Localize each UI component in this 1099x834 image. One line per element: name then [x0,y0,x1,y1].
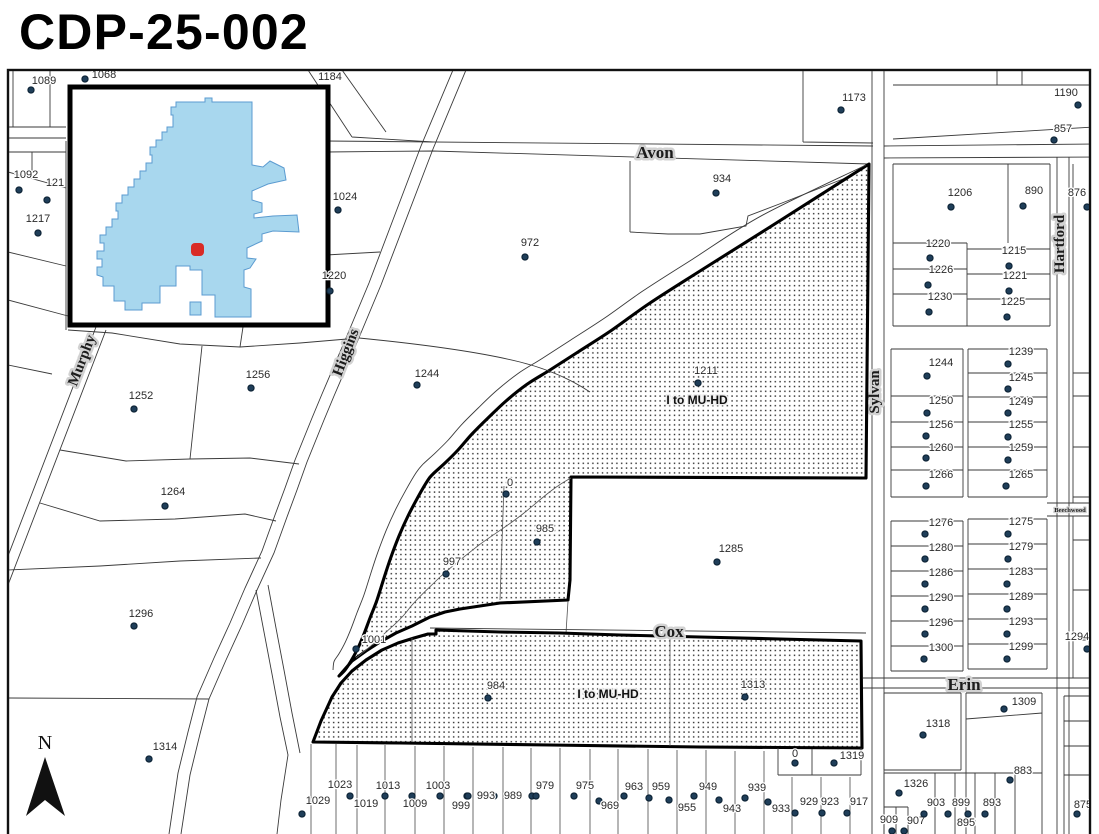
svg-text:1226: 1226 [929,264,953,276]
svg-text:876: 876 [1068,187,1086,199]
svg-text:893: 893 [983,797,1001,809]
svg-text:1206: 1206 [948,187,972,199]
svg-text:1001: 1001 [362,634,386,646]
svg-text:1173: 1173 [842,92,866,104]
svg-text:Beechwood: Beechwood [1054,507,1086,514]
svg-text:1300: 1300 [929,642,953,654]
svg-text:0: 0 [507,477,513,489]
svg-text:CDP-25-002: CDP-25-002 [19,4,309,60]
svg-text:1276: 1276 [929,517,953,529]
svg-text:I to MU-HD: I to MU-HD [666,393,728,407]
svg-text:1319: 1319 [840,750,864,762]
svg-text:1289: 1289 [1009,591,1033,603]
svg-text:903: 903 [927,797,945,809]
svg-text:1255: 1255 [1009,419,1033,431]
svg-text:959: 959 [652,781,670,793]
svg-text:972: 972 [521,237,539,249]
svg-text:1309: 1309 [1012,696,1036,708]
svg-text:1299: 1299 [1009,641,1033,653]
svg-text:979: 979 [536,780,554,792]
svg-text:929: 929 [800,796,818,808]
svg-text:1221: 1221 [1003,270,1027,282]
svg-text:955: 955 [678,802,696,814]
svg-text:1318: 1318 [926,718,950,730]
svg-text:1285: 1285 [719,543,743,555]
svg-text:1215: 1215 [1002,245,1026,257]
svg-text:1275: 1275 [1009,516,1033,528]
svg-text:933: 933 [772,803,790,815]
svg-text:943: 943 [723,803,741,815]
svg-text:1280: 1280 [929,542,953,554]
svg-text:1239: 1239 [1009,346,1033,358]
svg-text:1293: 1293 [1009,616,1033,628]
svg-text:1294: 1294 [1065,631,1089,643]
svg-text:949: 949 [699,781,717,793]
svg-text:1211: 1211 [694,365,718,377]
svg-text:1250: 1250 [929,395,953,407]
svg-text:984: 984 [487,680,505,692]
svg-text:Cox: Cox [654,622,684,641]
svg-text:917: 917 [850,796,868,808]
svg-text:899: 899 [952,797,970,809]
svg-text:1283: 1283 [1009,566,1033,578]
svg-text:989: 989 [504,790,522,802]
svg-text:993: 993 [477,790,495,802]
svg-text:939: 939 [748,782,766,794]
svg-text:1230: 1230 [928,291,952,303]
svg-text:909: 909 [880,814,898,826]
svg-text:1092: 1092 [14,169,38,181]
svg-text:985: 985 [536,523,554,535]
svg-text:1244: 1244 [929,357,953,369]
svg-text:Avon: Avon [636,143,674,162]
svg-text:1252: 1252 [129,390,153,402]
svg-text:N: N [38,732,52,754]
svg-text:1024: 1024 [333,191,357,203]
svg-text:1029: 1029 [306,795,330,807]
svg-text:1265: 1265 [1009,469,1033,481]
svg-text:1184: 1184 [318,71,342,83]
svg-text:Hartford: Hartford [1052,214,1068,273]
svg-text:1220: 1220 [926,238,950,250]
svg-text:1003: 1003 [426,780,450,792]
svg-text:1023: 1023 [328,779,352,791]
svg-text:1245: 1245 [1009,372,1033,384]
svg-text:857: 857 [1054,123,1072,135]
svg-text:1266: 1266 [929,469,953,481]
svg-text:1314: 1314 [153,741,177,753]
svg-text:1244: 1244 [415,368,439,380]
svg-text:975: 975 [576,780,594,792]
svg-text:963: 963 [625,781,643,793]
svg-text:1013: 1013 [376,780,400,792]
svg-text:0: 0 [792,748,798,760]
svg-text:1286: 1286 [929,567,953,579]
svg-text:1296: 1296 [929,617,953,629]
svg-text:I to MU-HD: I to MU-HD [577,687,639,701]
svg-text:895: 895 [957,817,975,829]
svg-text:1220: 1220 [322,270,346,282]
svg-text:883: 883 [1014,765,1032,777]
svg-text:Erin: Erin [947,675,981,694]
svg-text:1089: 1089 [32,75,56,87]
svg-text:1259: 1259 [1009,442,1033,454]
svg-text:1260: 1260 [929,442,953,454]
svg-text:999: 999 [452,800,470,812]
svg-text:1256: 1256 [246,369,270,381]
svg-text:923: 923 [821,796,839,808]
svg-text:1009: 1009 [403,798,427,810]
svg-text:934: 934 [713,173,731,185]
svg-text:1326: 1326 [904,778,928,790]
svg-text:1249: 1249 [1009,396,1033,408]
svg-text:997: 997 [443,556,461,568]
svg-text:1290: 1290 [929,592,953,604]
svg-text:1256: 1256 [929,419,953,431]
svg-text:969: 969 [601,800,619,812]
svg-text:1313: 1313 [741,679,765,691]
svg-text:1264: 1264 [161,486,185,498]
svg-text:Sylvan: Sylvan [867,370,883,414]
svg-text:1296: 1296 [129,608,153,620]
svg-text:1225: 1225 [1001,296,1025,308]
svg-text:1217: 1217 [26,213,50,225]
svg-text:890: 890 [1025,185,1043,197]
svg-text:121: 121 [46,177,64,189]
svg-text:1019: 1019 [354,798,378,810]
svg-text:1279: 1279 [1009,541,1033,553]
svg-text:1190: 1190 [1054,87,1078,99]
